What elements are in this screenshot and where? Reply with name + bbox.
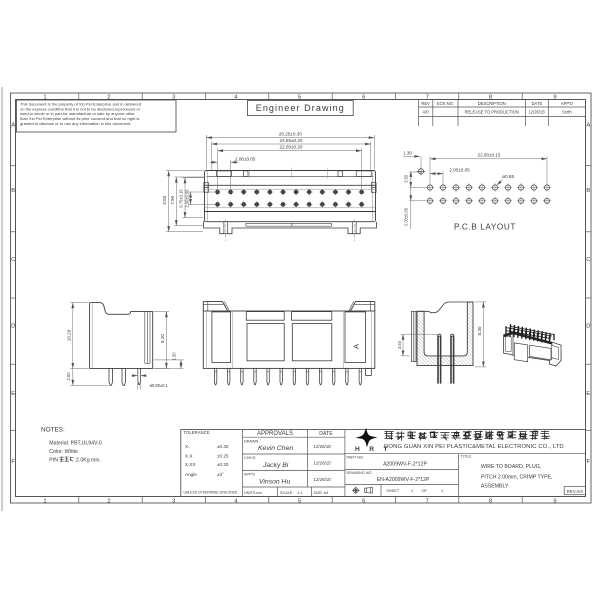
svg-text:2.00±0.05: 2.00±0.05 xyxy=(185,189,190,208)
svg-text:UNITS: UNITS xyxy=(244,491,256,495)
svg-text:OF: OF xyxy=(422,488,428,493)
svg-text:12/26/15': 12/26/15' xyxy=(529,110,546,115)
svg-text:E: E xyxy=(11,391,15,397)
svg-text:A2009WV-F-2*12P: A2009WV-F-2*12P xyxy=(383,462,427,468)
svg-text:X.X: X.X xyxy=(185,454,192,459)
svg-text:7.90: 7.90 xyxy=(170,195,175,204)
svg-text:SIZE: A4: SIZE: A4 xyxy=(314,491,329,495)
svg-text:Kevin Chen: Kevin Chen xyxy=(258,445,293,452)
svg-text:DATE: DATE xyxy=(532,101,543,106)
svg-text:ø0.80±0.1: ø0.80±0.1 xyxy=(150,383,169,388)
svg-text:3.50: 3.50 xyxy=(397,340,402,349)
svg-text:DRAWN: DRAWN xyxy=(244,439,258,443)
svg-text:1: 1 xyxy=(441,488,443,493)
svg-text:ø0.85: ø0.85 xyxy=(502,174,514,179)
svg-text:PITCH 2.00mm, CRIMP TYPE,: PITCH 2.00mm, CRIMP TYPE, xyxy=(481,474,553,480)
svg-text:±0.30: ±0.30 xyxy=(217,444,229,449)
svg-text:NOTES:: NOTES: xyxy=(41,427,65,434)
svg-text:REV: REV xyxy=(421,101,430,106)
svg-text:2: 2 xyxy=(107,498,110,504)
svg-text:SHEET: SHEET xyxy=(386,488,400,493)
svg-text:C: C xyxy=(586,257,590,263)
svg-text:12/26/15': 12/26/15' xyxy=(314,461,332,466)
svg-text:B: B xyxy=(586,188,590,194)
svg-text:±0.25: ±0.25 xyxy=(217,454,229,459)
svg-text:±3˚: ±3˚ xyxy=(217,471,224,477)
svg-text:10.20: 10.20 xyxy=(67,329,72,341)
svg-text:5: 5 xyxy=(298,498,301,504)
svg-text:ASSEMBLY: ASSEMBLY xyxy=(481,483,509,489)
svg-text:DONG GUAN XIN PEI PLASTIC&META: DONG GUAN XIN PEI PLASTIC&METAL ELECTRON… xyxy=(384,444,564,450)
svg-text:1: 1 xyxy=(411,488,413,493)
svg-text:12/26/15': 12/26/15' xyxy=(314,444,332,449)
svg-text:8: 8 xyxy=(489,95,492,101)
svg-text:WIRE TO BOARD, PLUG,: WIRE TO BOARD, PLUG, xyxy=(481,464,541,470)
svg-text:9: 9 xyxy=(553,498,556,504)
svg-text:3: 3 xyxy=(172,498,175,504)
svg-text:EN-A2009WV-F-2*12P: EN-A2009WV-F-2*12P xyxy=(377,477,430,483)
svg-text:9: 9 xyxy=(553,95,556,101)
svg-text:APP'D: APP'D xyxy=(561,101,573,106)
svg-text:2.00±0.05: 2.00±0.05 xyxy=(449,168,470,173)
svg-text:A/0: A/0 xyxy=(423,110,430,115)
svg-text:22.00±0.20: 22.00±0.20 xyxy=(280,145,303,150)
svg-text:8.20: 8.20 xyxy=(160,334,165,343)
svg-text:Engineer Drawing: Engineer Drawing xyxy=(256,103,345,113)
svg-text:APP'D: APP'D xyxy=(244,473,255,477)
svg-text:1: 1 xyxy=(43,498,46,504)
svg-text:6: 6 xyxy=(362,95,365,101)
svg-text:C: C xyxy=(11,257,15,263)
svg-text:TOLERANCE: TOLERANCE xyxy=(184,430,210,435)
svg-text:2.60: 2.60 xyxy=(66,372,71,381)
svg-text:P.C.B LAYOUT: P.C.B LAYOUT xyxy=(454,222,516,231)
svg-text:DATE: DATE xyxy=(319,431,333,437)
svg-text:7: 7 xyxy=(426,498,429,504)
svg-text:±0.20: ±0.20 xyxy=(217,462,229,467)
svg-text:Material: PBT,UL94V-0: Material: PBT,UL94V-0 xyxy=(49,440,102,446)
svg-text:A: A xyxy=(352,344,361,349)
svg-text:X.: X. xyxy=(185,444,189,449)
svg-text:TITLE:: TITLE: xyxy=(461,454,472,458)
svg-text:Jacky Bi: Jacky Bi xyxy=(262,462,289,469)
svg-text:1:1: 1:1 xyxy=(297,491,302,495)
svg-text:24.65±0.20: 24.65±0.20 xyxy=(280,138,303,143)
svg-text:7: 7 xyxy=(426,95,429,101)
svg-text:E: E xyxy=(586,391,590,397)
svg-text:APPROVALS: APPROVALS xyxy=(257,431,293,437)
svg-text:PIN: PIN xyxy=(49,457,58,463)
svg-text:B: B xyxy=(11,188,15,194)
svg-text:A: A xyxy=(11,123,15,129)
svg-text:D: D xyxy=(11,324,15,330)
svg-text:X.XX: X.XX xyxy=(185,462,195,467)
svg-text:3.50: 3.50 xyxy=(403,174,408,183)
svg-text:9.50: 9.50 xyxy=(162,195,167,204)
svg-text:2.00±0.05: 2.00±0.05 xyxy=(235,156,256,161)
svg-text:DRAWING NO.: DRAWING NO. xyxy=(347,471,373,475)
svg-text:REV.A/0: REV.A/0 xyxy=(567,489,584,494)
svg-text:ECN NO.: ECN NO. xyxy=(437,101,454,106)
svg-text:Vinson Hu: Vinson Hu xyxy=(259,478,290,485)
svg-text:26.25±0.30: 26.25±0.30 xyxy=(279,132,302,137)
svg-text:5: 5 xyxy=(298,95,301,101)
svg-text:2.00±0.05: 2.00±0.05 xyxy=(403,207,408,226)
svg-text:PART NO.: PART NO. xyxy=(347,456,365,460)
svg-text:8.30: 8.30 xyxy=(477,326,482,335)
svg-text:6: 6 xyxy=(362,498,365,504)
svg-text:mm: mm xyxy=(256,491,262,495)
svg-text:RELEASE TO PRODUCTION: RELEASE TO PRODUCTION xyxy=(465,110,519,115)
svg-text:CHK'D: CHK'D xyxy=(244,456,256,460)
svg-text:Color: White: Color: White xyxy=(49,449,78,455)
svg-text::2.0Kg min.: :2.0Kg min. xyxy=(75,457,101,463)
svg-text:6.75±0.15: 6.75±0.15 xyxy=(179,189,184,208)
svg-text:D: D xyxy=(586,324,590,330)
svg-text:F: F xyxy=(11,459,15,465)
svg-text:SCALE: SCALE xyxy=(280,491,293,495)
svg-text:A: A xyxy=(586,123,590,129)
svg-text:DESCRIPTION: DESCRIPTION xyxy=(478,101,506,106)
svg-text:UNLESS OTHERWISE SPECIFIED: UNLESS OTHERWISE SPECIFIED xyxy=(184,491,238,495)
svg-text:12/26/15': 12/26/15' xyxy=(314,477,332,482)
svg-text:8: 8 xyxy=(489,498,492,504)
svg-text:Angle: Angle xyxy=(185,472,197,477)
svg-text:granted to disclose or to use: granted to disclose or to use any inform… xyxy=(20,121,131,126)
svg-text:F: F xyxy=(587,459,591,465)
svg-text:1.30: 1.30 xyxy=(403,151,412,156)
svg-text:Scrth: Scrth xyxy=(562,110,572,115)
svg-text:1.30: 1.30 xyxy=(172,352,177,361)
svg-text:22.00±0.15: 22.00±0.15 xyxy=(478,153,501,158)
